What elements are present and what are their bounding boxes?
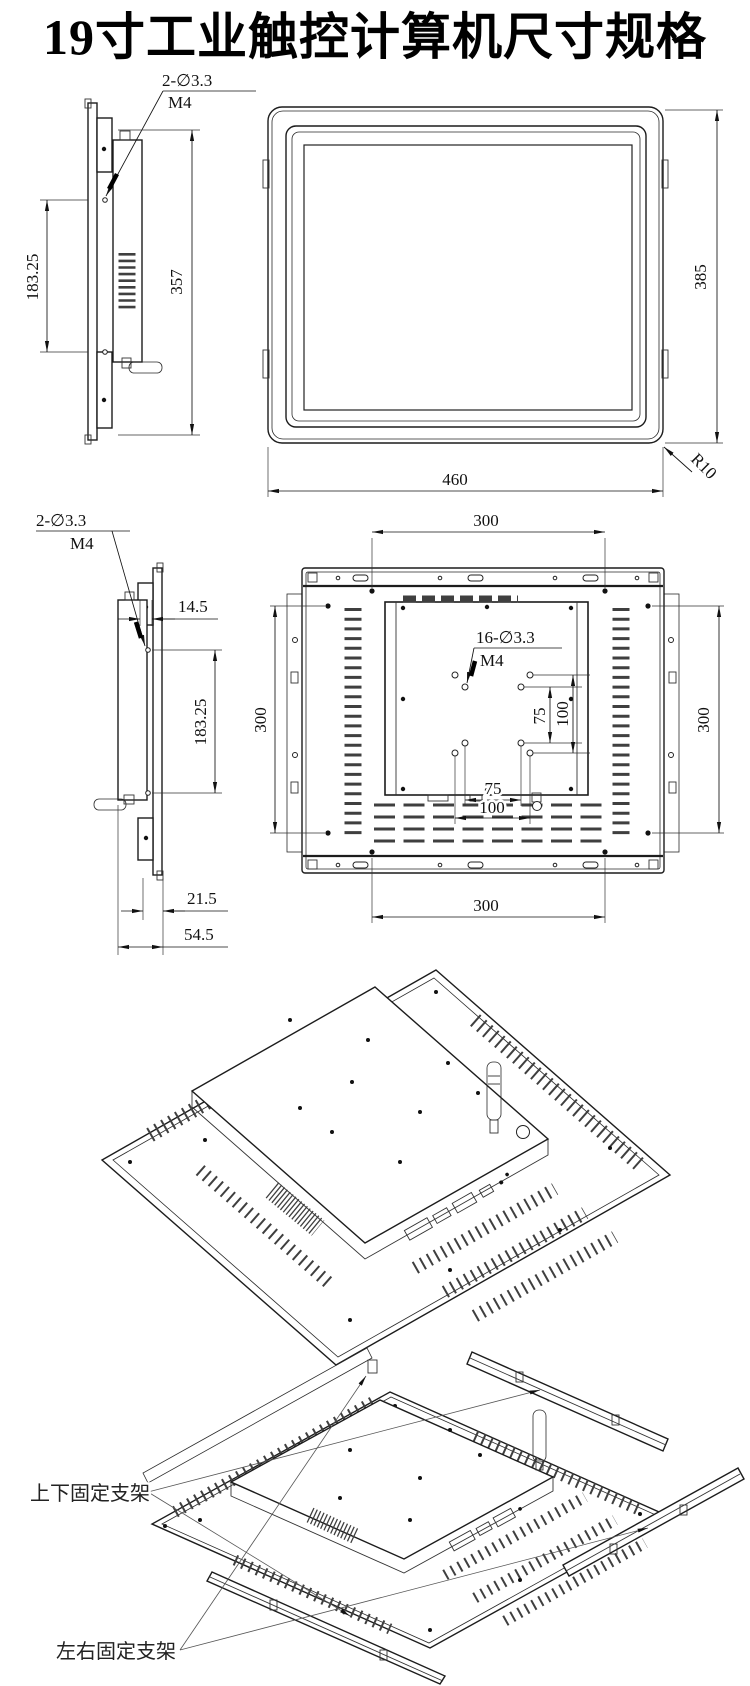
dim-corner-radius: R10 [687, 449, 720, 482]
dim-460: 460 [268, 447, 663, 497]
dim-54-5: 54.5 [118, 805, 228, 955]
dim-21-5: 21.5 [121, 878, 228, 920]
dim-vesa-h75: 75 [485, 779, 502, 798]
exploded-view [143, 1348, 744, 1684]
front-view [263, 107, 668, 443]
side-hole-thread: M4 [168, 93, 192, 112]
dim-vesa-h100: 100 [479, 798, 505, 817]
dim-left-span: 300 [251, 707, 270, 733]
dim-hole-spacing-rear: 183.25 [191, 699, 210, 746]
dim-overall-height: 385 [691, 264, 710, 290]
dim-overall-width: 460 [442, 470, 468, 489]
dim-mount-height: 357 [167, 269, 186, 295]
dim-right-span: 300 [694, 707, 713, 733]
iso-rear-view [102, 970, 670, 1365]
vesa-hole-thread: M4 [480, 651, 504, 670]
side-hole-label-rear: 2-∅3.3 [36, 511, 86, 530]
technical-drawing-page: 19寸工业触控计算机尺寸规格 2-∅3.3 M4 183.25 [0, 0, 750, 1686]
label-top-bottom-bracket: 上下固定支架 [30, 1482, 150, 1505]
dim-hole-spacing: 183.25 [23, 254, 42, 301]
page-title: 19寸工业触控计算机尺寸规格 [43, 9, 707, 65]
vesa-hole-label: 16-∅3.3 [476, 628, 535, 647]
side-view-front-section [85, 99, 162, 444]
dim-385: 385 [665, 110, 723, 443]
dim-vesa-v100: 100 [553, 701, 572, 727]
dim-bezel-depth: 14.5 [178, 597, 208, 616]
side-hole-thread-rear: M4 [70, 534, 94, 553]
corner-radius-callout: R10 [664, 447, 721, 483]
label-left-right-bracket: 左右固定支架 [56, 1640, 176, 1663]
dim-top-span: 300 [473, 511, 499, 530]
dim-depth-inner: 21.5 [187, 889, 217, 908]
dim-183-25-front: 183.25 [23, 200, 88, 352]
dim-bottom-span: 300 [473, 896, 499, 915]
dim-vesa-v75: 75 [530, 708, 549, 725]
rear-view [287, 568, 679, 873]
dim-depth-total: 54.5 [184, 925, 214, 944]
side-view-rear-section [94, 563, 163, 880]
side-hole-label: 2-∅3.3 [162, 71, 212, 90]
